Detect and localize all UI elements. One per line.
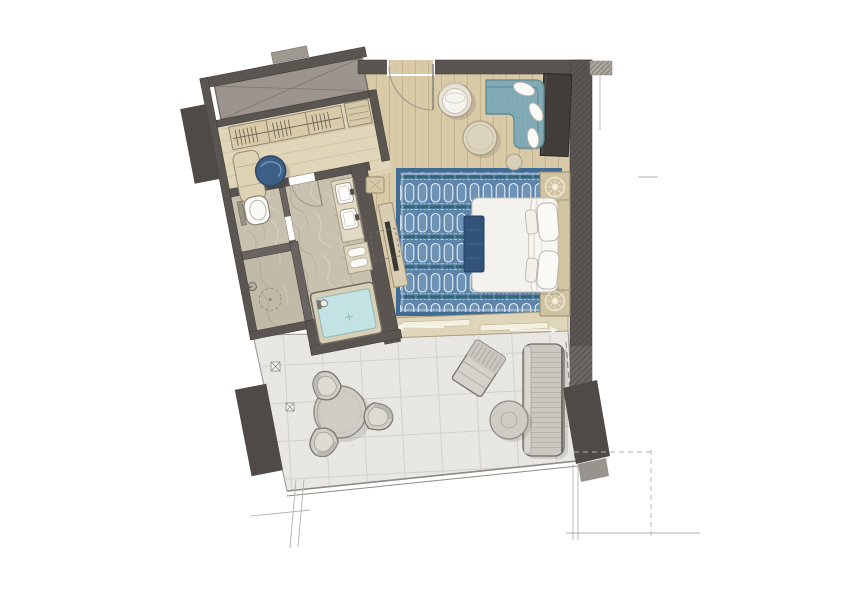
round-side-table [506,154,522,170]
floor-plan-canvas [0,0,850,601]
accent-pillow-bottom [525,258,538,283]
bathtub [310,282,383,345]
entry-threshold [389,60,433,74]
foot-bench [464,216,484,272]
pillow-top [536,202,559,242]
double-bed [472,198,570,295]
floor-plan-svg [0,0,850,601]
towel-shelf [343,242,372,274]
outdoor-daybed [523,344,568,459]
pillow-bottom [536,250,559,290]
headboard [558,200,570,290]
accent-pillow-top [525,210,538,235]
shower-arm [248,287,252,288]
luggage-bench [344,99,372,127]
floor-drain-marker-2 [286,403,294,411]
floor-drain-marker [271,362,280,371]
wall-east-hatch [570,60,592,390]
